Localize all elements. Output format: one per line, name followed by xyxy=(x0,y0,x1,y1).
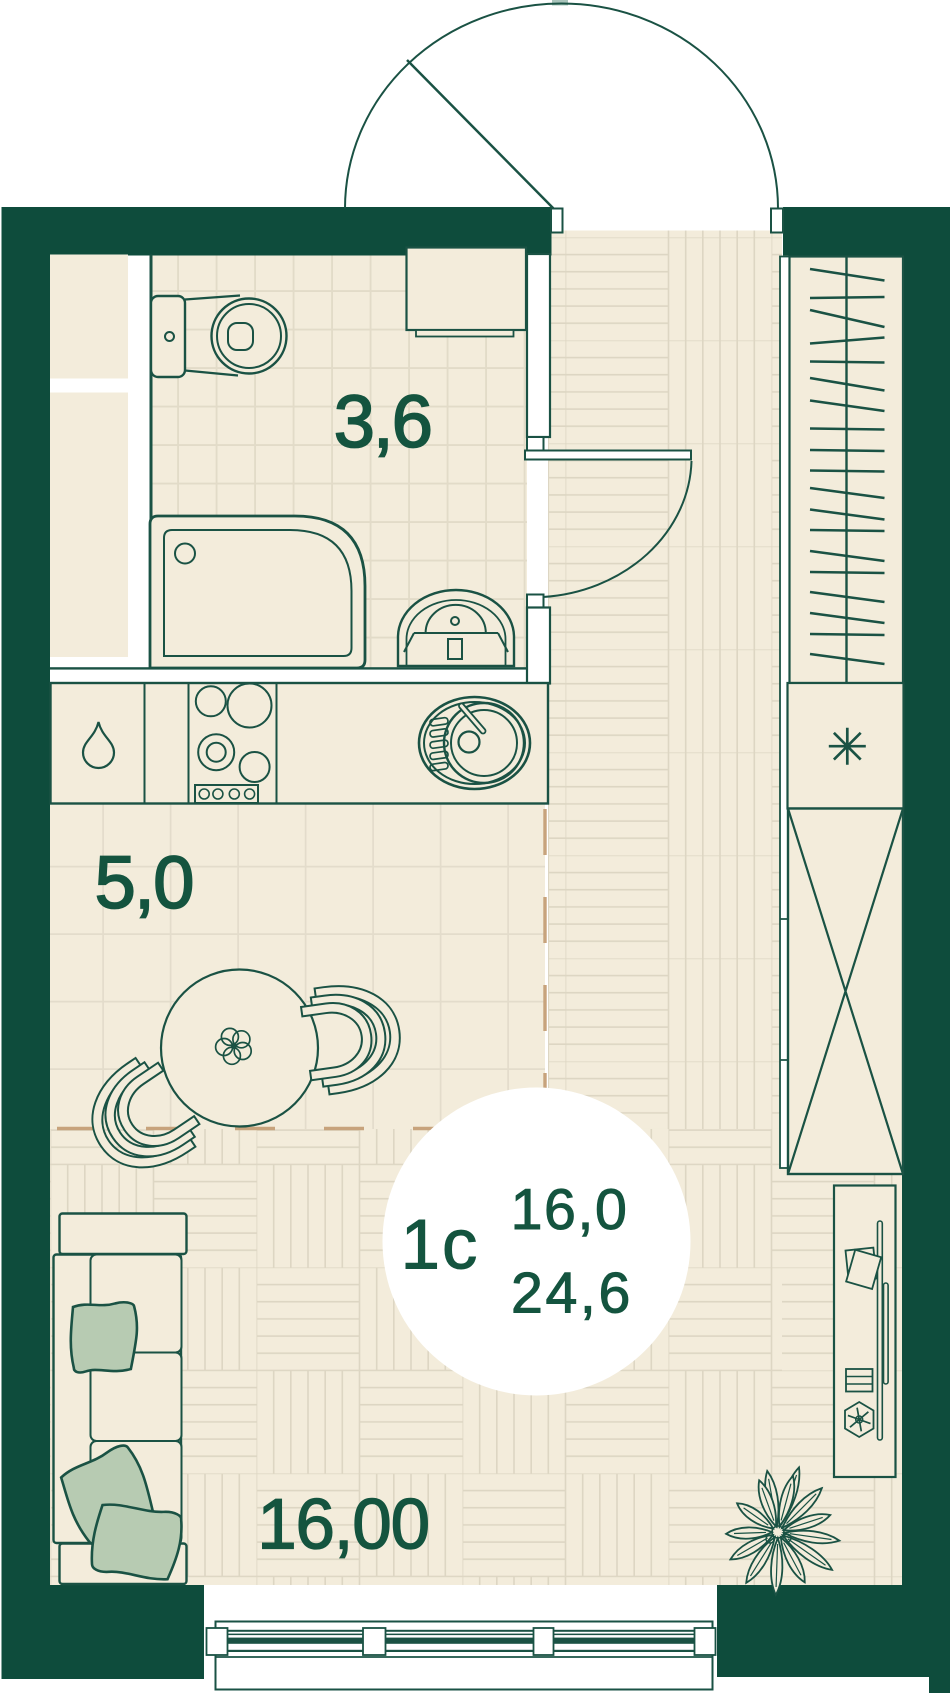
svg-text:16,00: 16,00 xyxy=(257,1486,429,1565)
svg-text:16,0: 16,0 xyxy=(511,1178,629,1242)
svg-text:3,6: 3,6 xyxy=(334,380,431,463)
svg-text:5,0: 5,0 xyxy=(95,841,193,924)
svg-text:24,6: 24,6 xyxy=(511,1261,633,1325)
svg-text:1с: 1с xyxy=(401,1206,480,1285)
